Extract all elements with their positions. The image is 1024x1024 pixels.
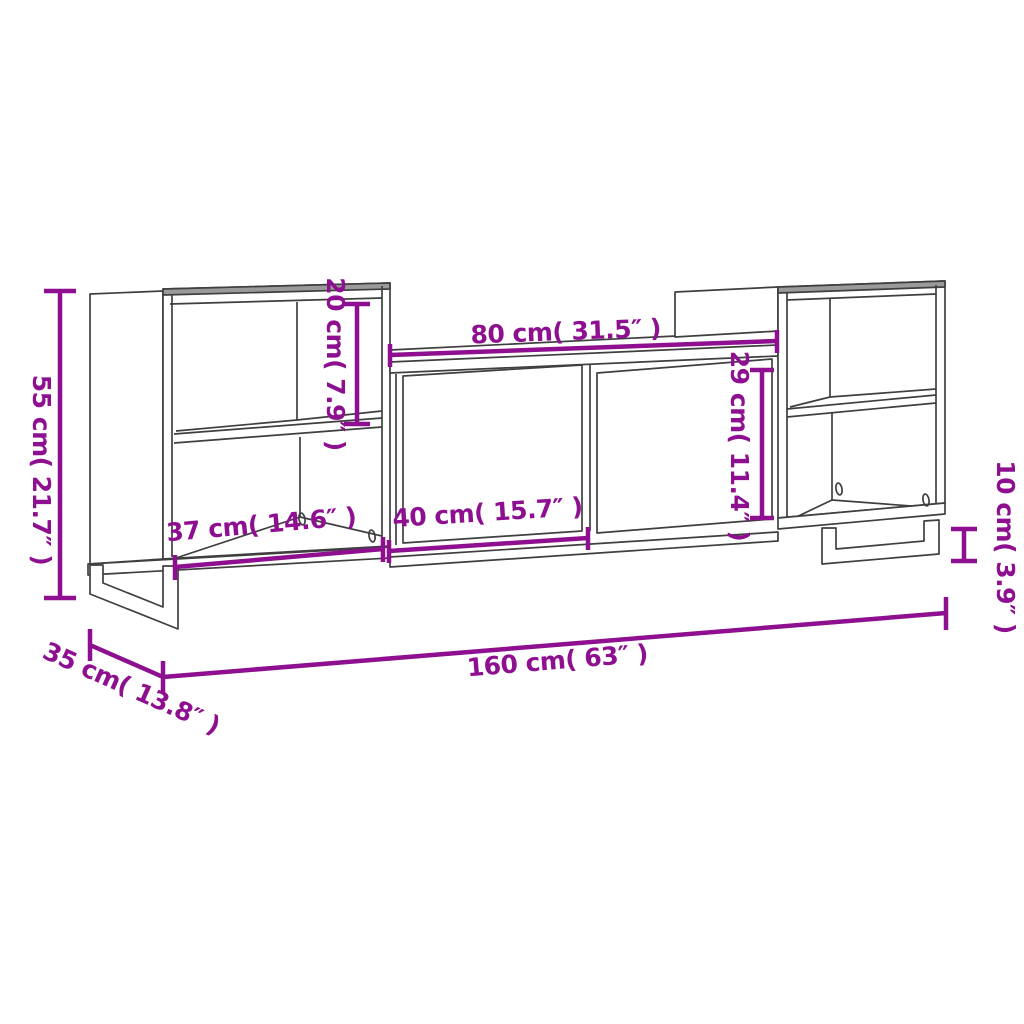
leg-height-dimension xyxy=(951,529,977,561)
left-leg xyxy=(90,565,178,629)
left-side-panel xyxy=(90,291,163,564)
dim-label-leg-height: 10 cm( 3.9″ ) xyxy=(991,460,1020,634)
diagram-canvas: 55 cm( 21.7″ ) 20 cm( 7.9″ ) 80 cm( 31.5… xyxy=(0,0,1024,1024)
right-unit-side-panel xyxy=(675,287,778,337)
right-leg xyxy=(822,520,939,564)
dim-label-upper-opening-height: 20 cm( 7.9″ ) xyxy=(321,277,350,451)
dim-label-overall-width: 160 cm( 63″ ) xyxy=(466,639,649,683)
dim-label-overall-height: 55 cm( 21.7″ ) xyxy=(27,375,56,565)
dim-label-door-height: 29 cm( 11.4″ ) xyxy=(725,351,754,541)
right-front-frame xyxy=(778,281,945,518)
dim-label-depth: 35 cm( 13.8″ ) xyxy=(39,636,225,740)
tv-cabinet-dimension-diagram: 55 cm( 21.7″ ) 20 cm( 7.9″ ) 80 cm( 31.5… xyxy=(0,0,1024,1024)
right-shelf-unit xyxy=(778,281,945,529)
